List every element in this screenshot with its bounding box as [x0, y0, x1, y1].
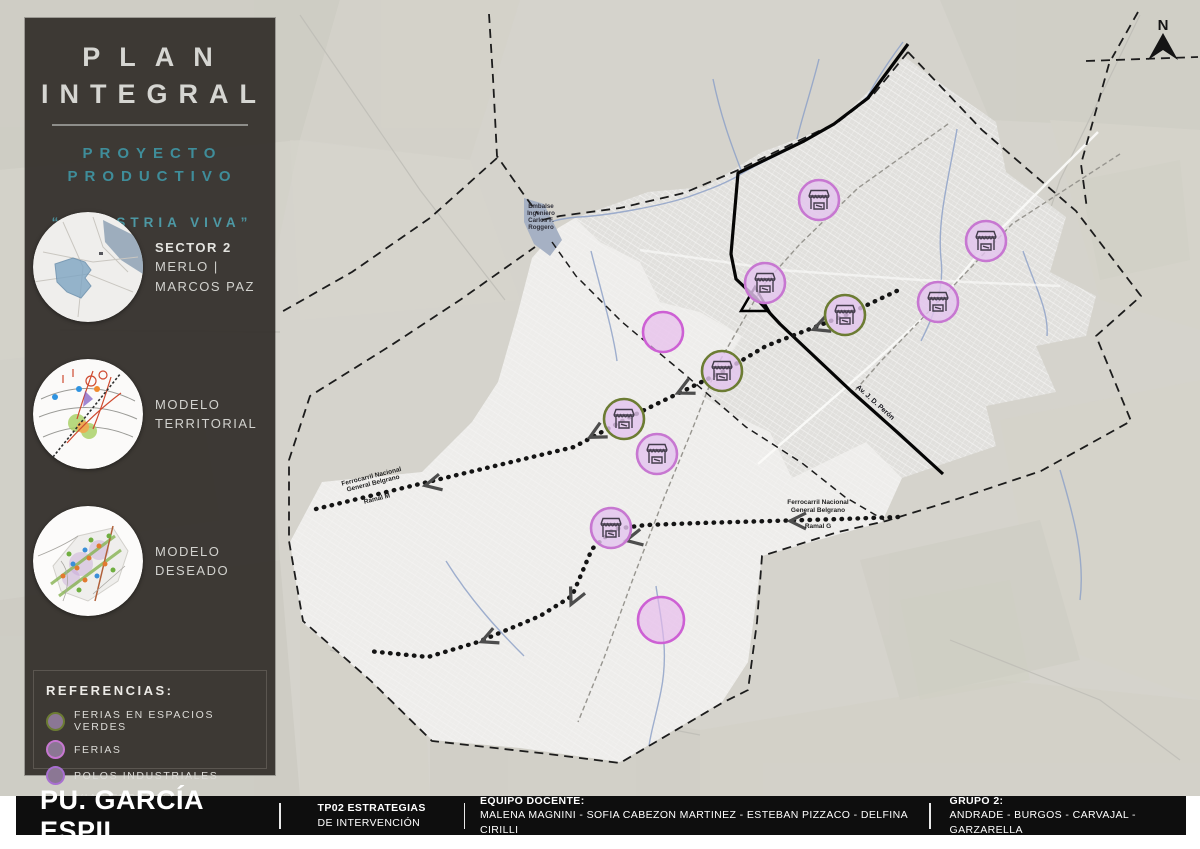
svg-text:Ferrocarril Nacional: Ferrocarril Nacional [787, 499, 849, 506]
modelo-deseado-image [33, 506, 143, 616]
legend-item-ferias-verdes: FERIAS EN ESPACIOS VERDES [46, 709, 254, 733]
polo-industrial-swatch [46, 766, 65, 785]
feria-swatch [46, 740, 65, 759]
modelo-territorial-image [33, 359, 143, 469]
legend-item-ferias: FERIAS [46, 740, 254, 759]
feria-espacios-verdes-marker [825, 295, 865, 335]
svg-text:General Belgrano: General Belgrano [791, 507, 845, 514]
thumbnail-modelo-deseado: MODELO DESEADO [33, 506, 229, 616]
north-label: N [1158, 17, 1169, 34]
legend-title: REFERENCIAS: [46, 683, 254, 698]
title-divider [52, 124, 248, 126]
modelo-deseado-label: MODELO DESEADO [155, 542, 229, 581]
feria-marker [745, 263, 785, 303]
studio-title: PU. GARCÍA ESPIL [16, 785, 279, 847]
feria-marker [966, 221, 1006, 261]
subtitle: PROYECTO PRODUCTIVO [30, 142, 275, 189]
feria-marker [637, 434, 677, 474]
sector-map-label: SECTOR 2 MERLO | MARCOS PAZ [155, 238, 275, 297]
thumbnail-modelo-territorial: MODELO TERRITORIAL [33, 359, 257, 469]
svg-text:Roggero: Roggero [528, 224, 554, 231]
title-block: PLAN INTEGRAL PROYECTO PRODUCTIVO “INDUS… [25, 18, 275, 230]
legend-item-polos: POLOS INDUSTRIALES [46, 766, 254, 785]
footer-tp02: TP02 ESTRATEGIAS DE INTERVENCIÓN [281, 801, 464, 829]
polo-industrial-marker [638, 597, 684, 643]
footer-bar: PU. GARCÍA ESPIL TP02 ESTRATEGIAS DE INT… [16, 796, 1186, 835]
feria-espacios-verdes-marker [702, 351, 742, 391]
reservoir-label: Embalse Ingeniero Carlos F. Roggero [527, 203, 555, 231]
title-line-1: PLAN [39, 42, 275, 73]
modelo-territorial-label: MODELO TERRITORIAL [155, 395, 257, 434]
presentation-board: Embalse Ingeniero Carlos F. Roggero Ferr… [0, 0, 1200, 849]
title-line-2: INTEGRAL [33, 79, 275, 110]
feria-marker [591, 508, 631, 548]
svg-text:Embalse: Embalse [528, 203, 554, 210]
svg-text:Ingeniero: Ingeniero [527, 210, 555, 217]
feria-espacios-verdes-marker [604, 399, 644, 439]
svg-text:Ramal G: Ramal G [805, 523, 831, 530]
sidebar-panel: PLAN INTEGRAL PROYECTO PRODUCTIVO “INDUS… [25, 18, 275, 775]
feria-marker [799, 180, 839, 220]
legend-box: REFERENCIAS: FERIAS EN ESPACIOS VERDES F… [33, 670, 267, 769]
svg-text:Carlos F.: Carlos F. [528, 217, 554, 224]
feria-espacios-verdes-swatch [46, 712, 65, 731]
feria-marker [918, 282, 958, 322]
footer-equipo-docente: EQUIPO DOCENTE: MALENA MAGNINI - SOFIA C… [465, 794, 929, 837]
footer-grupo: GRUPO 2: ANDRADE - BURGOS - CARVAJAL - G… [931, 794, 1187, 837]
polo-industrial-marker [643, 312, 683, 352]
sector-map-image [33, 212, 143, 322]
thumbnail-sector-map: SECTOR 2 MERLO | MARCOS PAZ [33, 212, 275, 322]
